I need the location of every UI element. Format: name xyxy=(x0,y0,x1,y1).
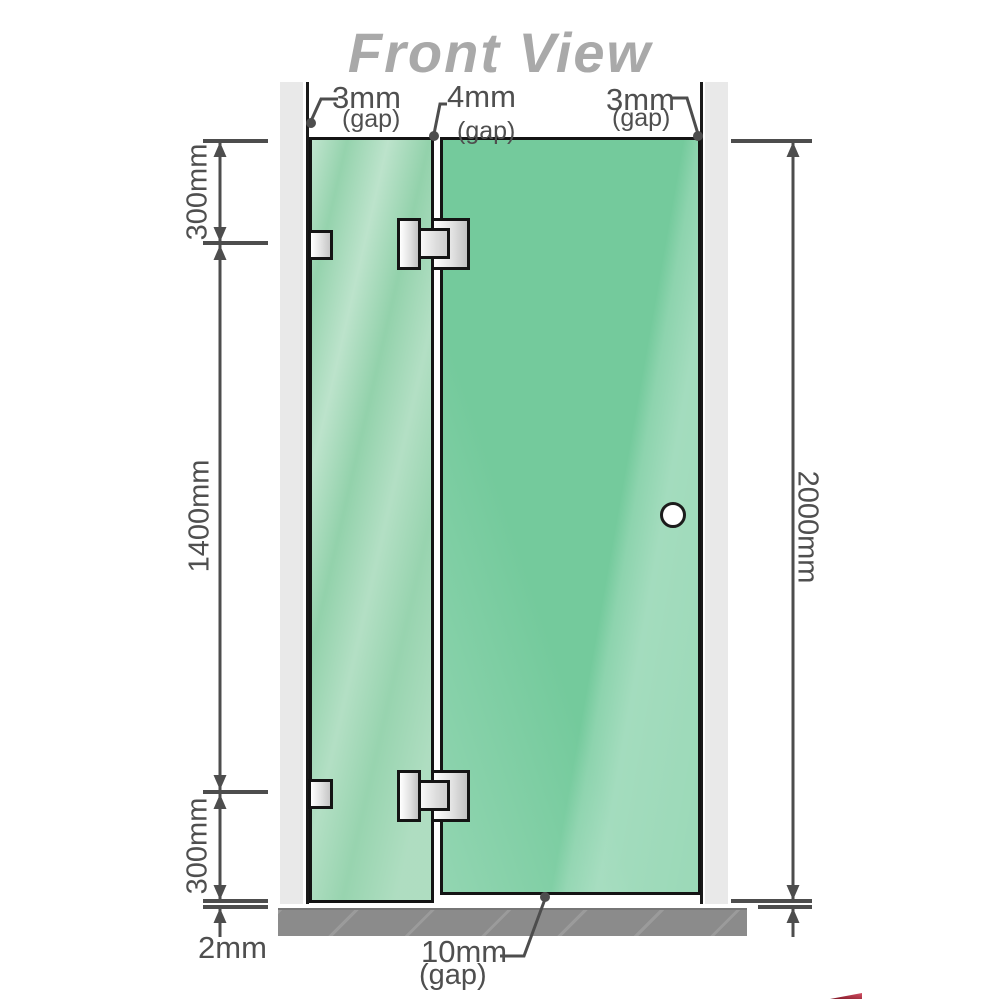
diagram-title: Front View xyxy=(348,20,652,85)
front-view-diagram: Front View xyxy=(0,0,1000,1000)
right-wall xyxy=(705,82,728,904)
dimension-label-left-bottom: 300mm xyxy=(184,798,213,895)
hinge-knuckle-icon xyxy=(418,228,450,259)
floor xyxy=(278,908,747,936)
hinge-bottom xyxy=(397,770,470,822)
gap-label-bottom-note: (gap) xyxy=(419,961,487,990)
gap-label-top-center-note: (gap) xyxy=(457,119,515,144)
wall-bracket-bottom xyxy=(308,779,333,809)
wall-bracket-top xyxy=(308,230,333,260)
door-handle-knob xyxy=(660,502,686,528)
dimension-label-floor-gap: 2mm xyxy=(198,932,267,963)
hinge-top xyxy=(397,218,470,270)
gap-label-top-center-value: 4mm xyxy=(447,81,516,112)
gap-label-top-right-note: (gap) xyxy=(612,106,670,131)
hinge-knuckle-icon xyxy=(418,780,450,811)
logo-fragment xyxy=(830,992,862,999)
dimension-label-total-height: 2000mm xyxy=(793,471,822,584)
left-wall xyxy=(280,82,303,904)
gap-label-top-left-note: (gap) xyxy=(342,107,400,132)
dimension-label-left-top: 300mm xyxy=(184,144,213,241)
dimension-label-left-middle: 1400mm xyxy=(186,460,215,573)
